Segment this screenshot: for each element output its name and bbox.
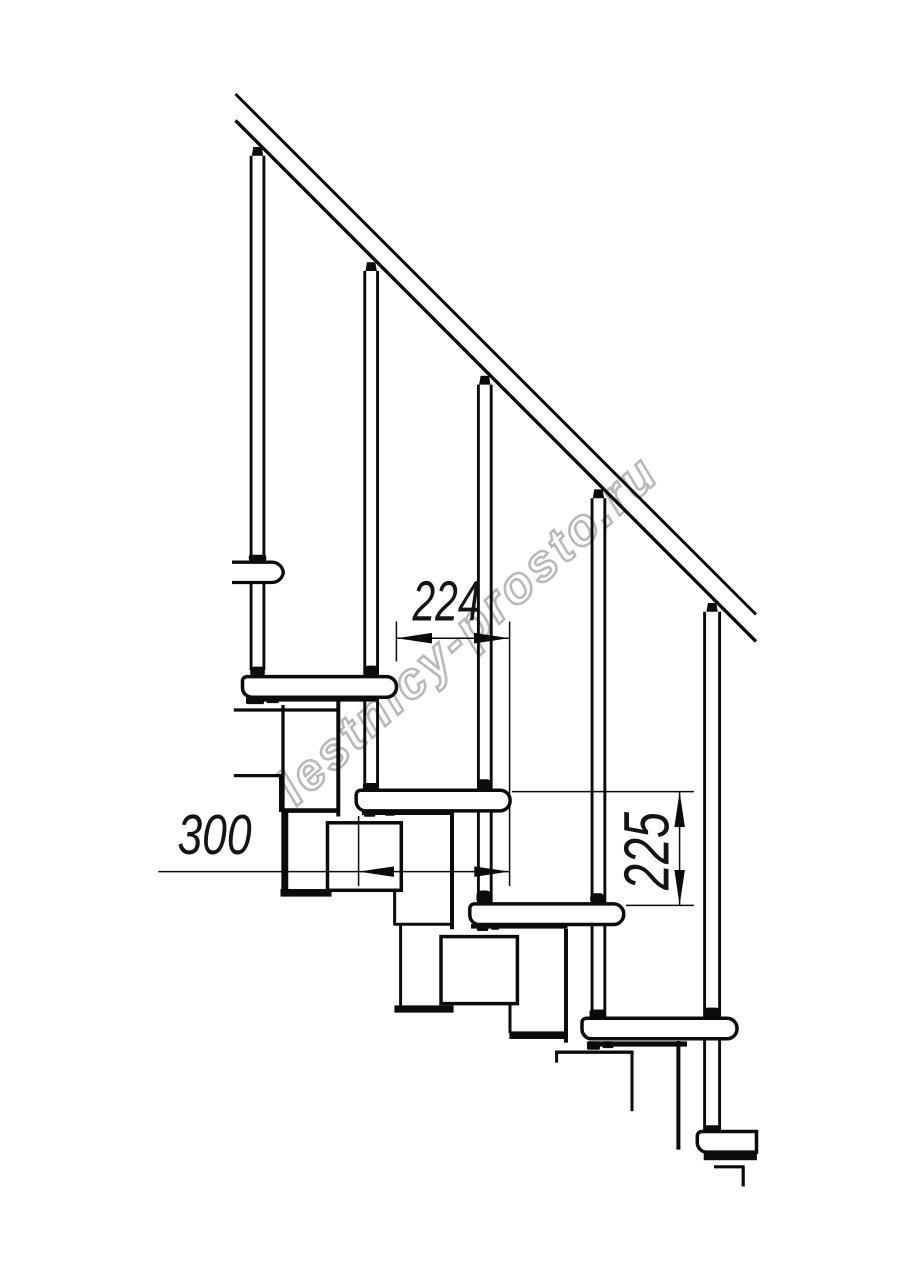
svg-text:225: 225 [611, 812, 683, 891]
svg-text:300: 300 [178, 803, 252, 867]
svg-text:224: 224 [412, 570, 481, 634]
